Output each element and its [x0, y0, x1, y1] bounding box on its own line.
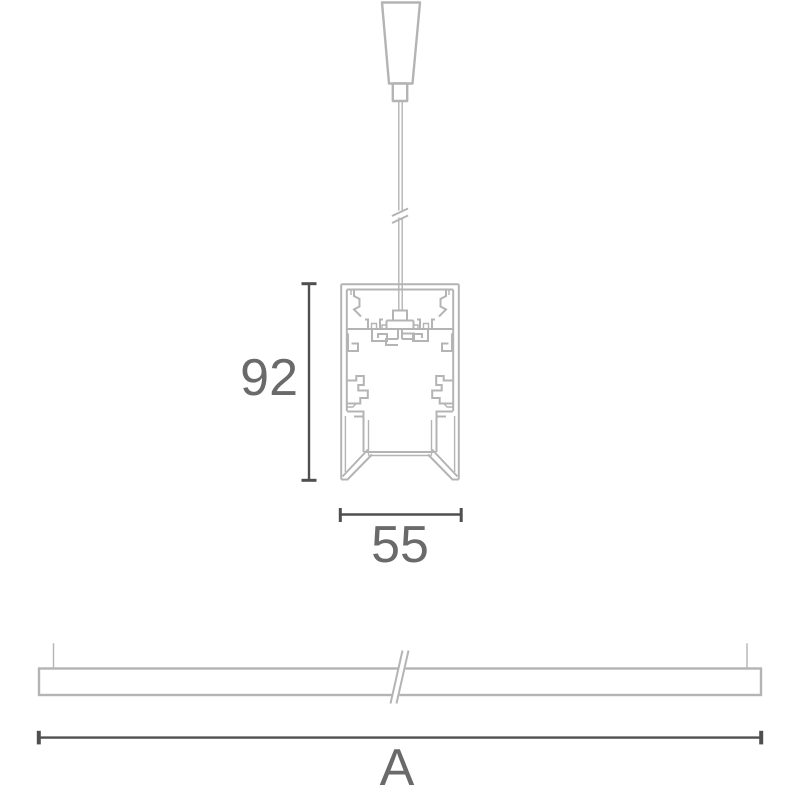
ceiling-canopy: [382, 3, 420, 102]
canopy-cable-gripper: [393, 84, 407, 102]
technical-drawing-canvas: 92 55 A: [0, 0, 800, 800]
luminaire-side-view: [39, 643, 761, 705]
cable-break-symbol: [392, 209, 408, 224]
profile-cross-section: [341, 284, 459, 479]
width-dimension-label: 55: [350, 519, 450, 571]
height-dimension-line: [302, 284, 317, 481]
suspension-cable: [392, 101, 408, 311]
height-dimension-label: 92: [198, 352, 298, 404]
line-art: [0, 0, 800, 800]
length-dimension-label: A: [347, 742, 447, 794]
profile-center-grip: [382, 311, 418, 346]
